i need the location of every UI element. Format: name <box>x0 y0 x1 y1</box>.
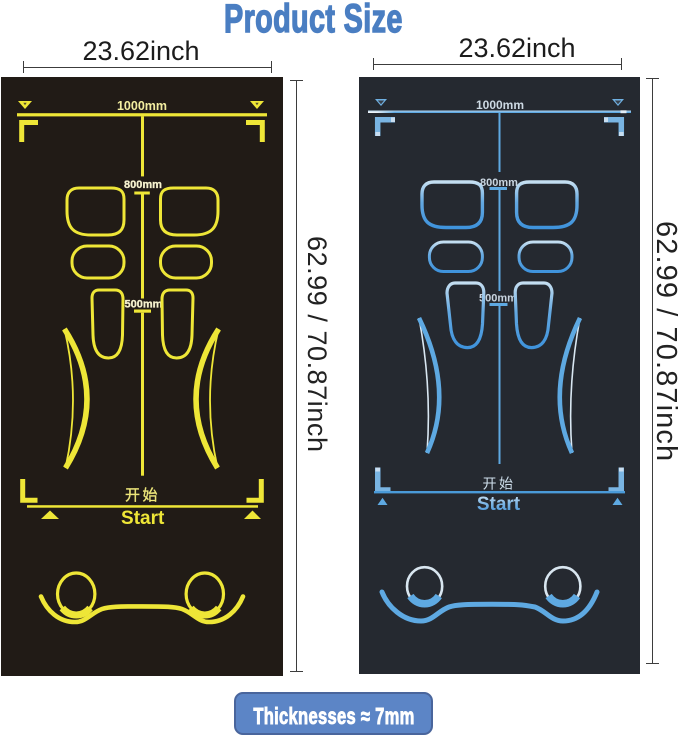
svg-text:Start: Start <box>477 494 521 515</box>
svg-text:1000mm: 1000mm <box>117 99 167 113</box>
svg-text:开始: 开始 <box>125 487 160 504</box>
svg-text:1000mm: 1000mm <box>476 98 524 112</box>
svg-text:Start: Start <box>121 508 165 529</box>
svg-text:800mm: 800mm <box>124 179 162 191</box>
svg-text:开始: 开始 <box>483 476 516 492</box>
svg-text:500mm: 500mm <box>125 299 163 311</box>
